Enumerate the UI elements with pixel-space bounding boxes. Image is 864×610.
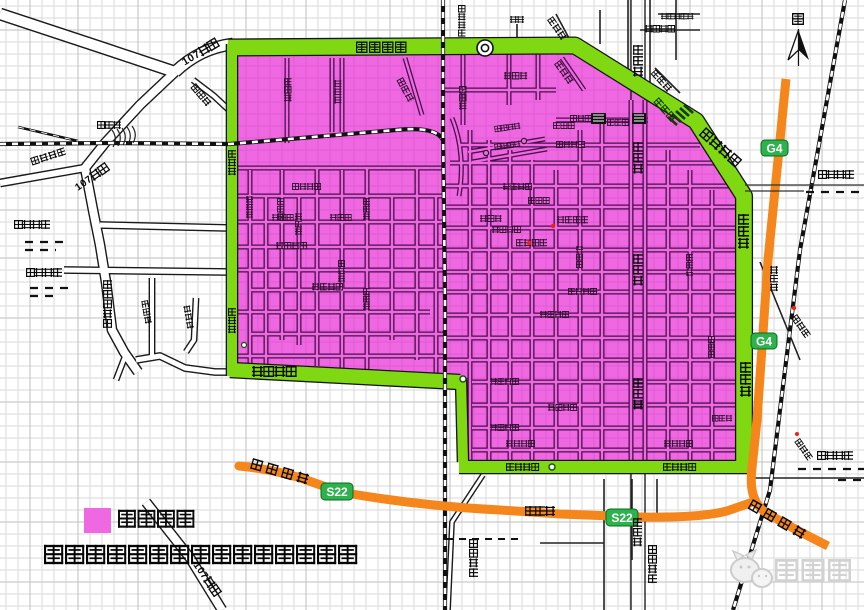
svg-text:S22: S22	[611, 511, 633, 525]
svg-text:G4: G4	[766, 141, 782, 155]
svg-text:S22: S22	[326, 485, 348, 499]
svg-text:G4: G4	[756, 334, 772, 348]
